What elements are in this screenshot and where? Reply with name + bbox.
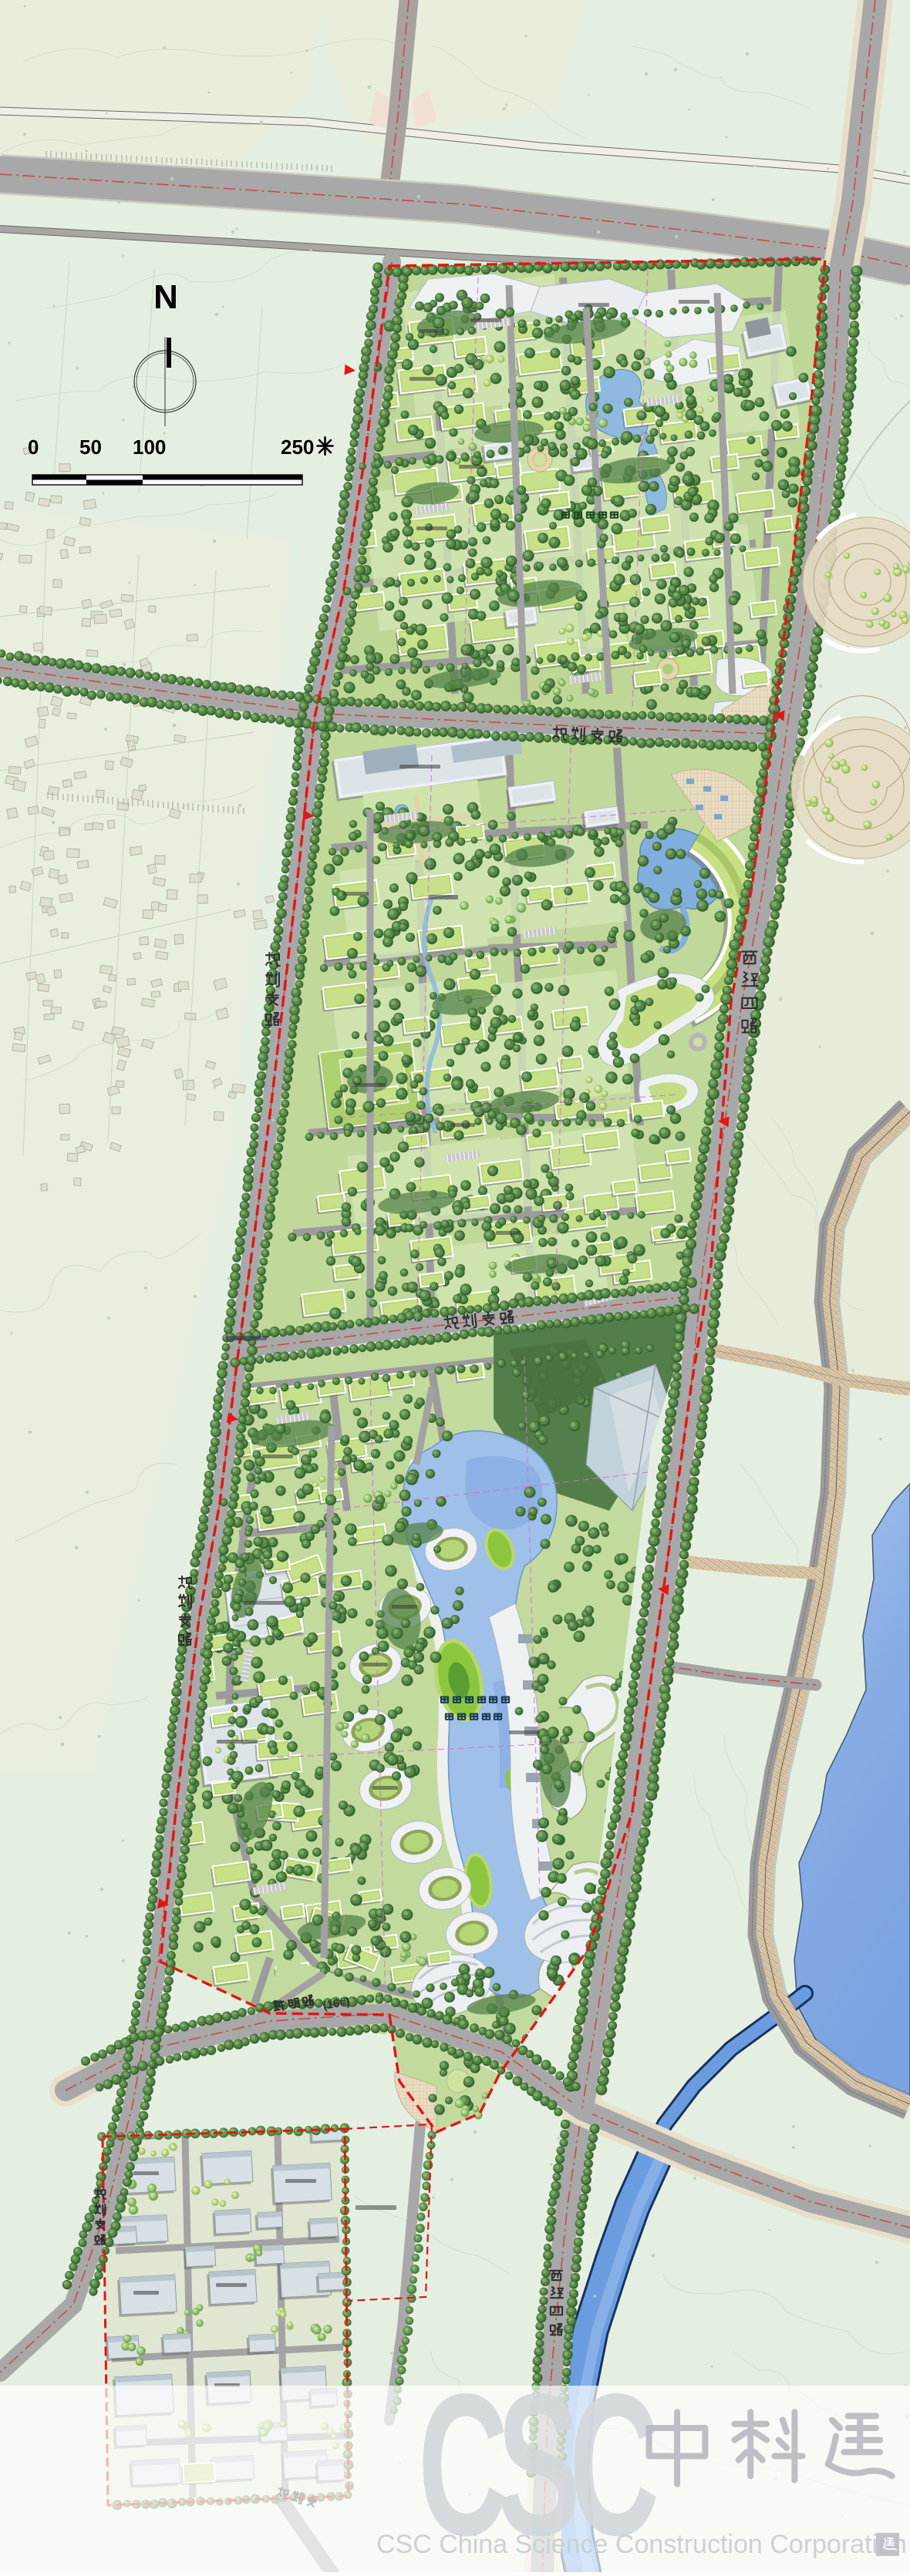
svg-text:250: 250	[281, 435, 314, 459]
svg-text:50: 50	[79, 435, 102, 459]
svg-text:100: 100	[133, 435, 166, 459]
svg-text:N: N	[153, 278, 178, 316]
svg-text:CSC China Science Construction: CSC China Science Construction Corporati…	[376, 2530, 907, 2559]
svg-text:0: 0	[28, 435, 39, 459]
